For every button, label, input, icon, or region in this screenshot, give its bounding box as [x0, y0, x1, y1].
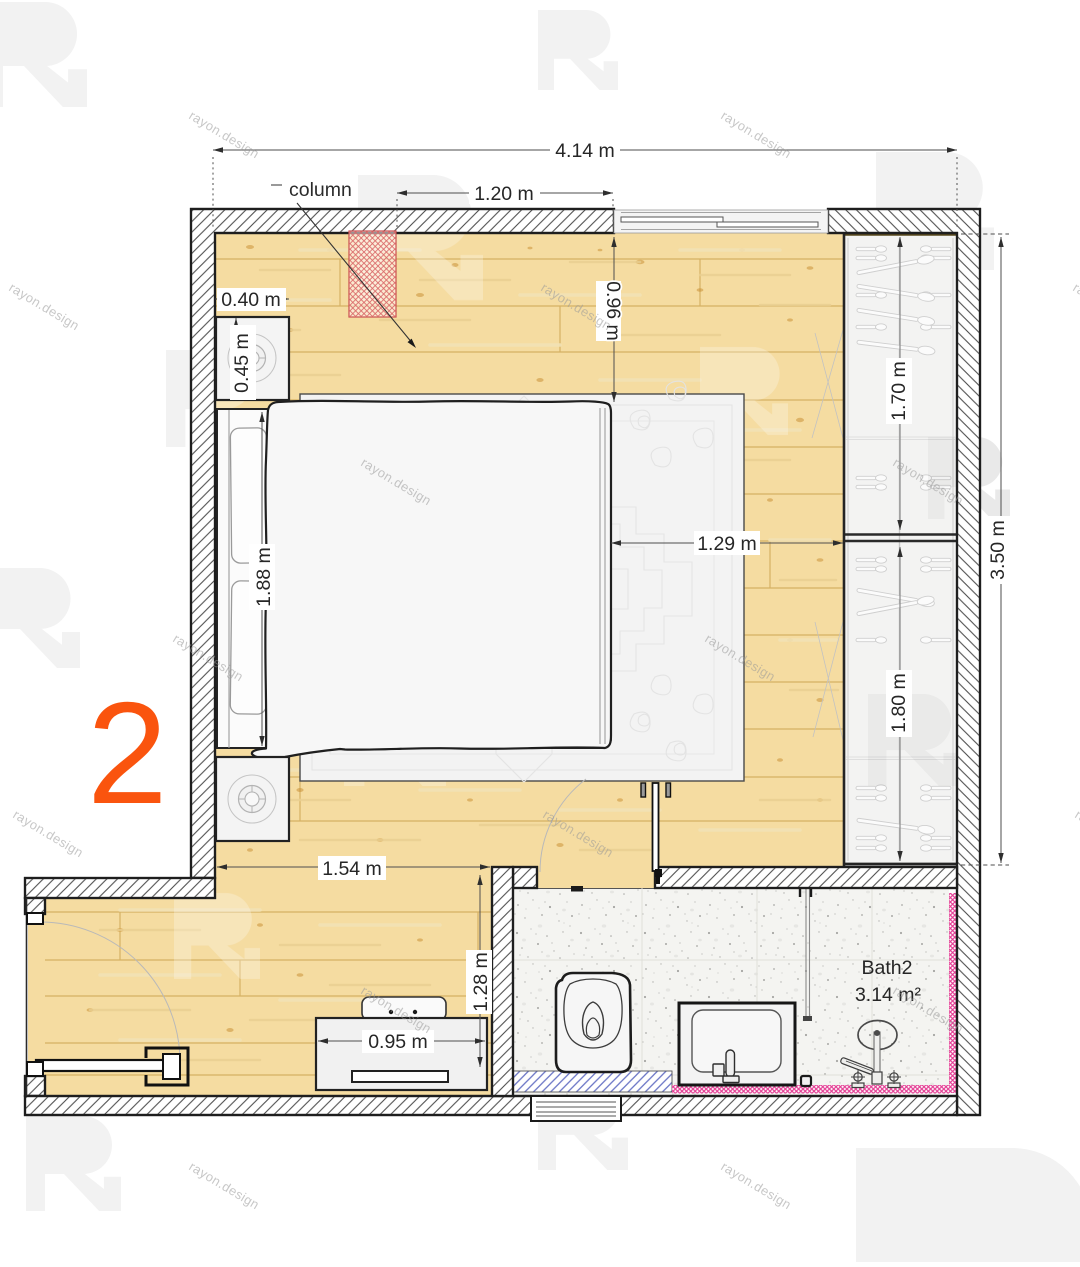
svg-text:0.40 m: 0.40 m: [221, 289, 281, 311]
svg-text:1.54 m: 1.54 m: [322, 858, 382, 880]
svg-text:1.88 m: 1.88 m: [253, 547, 275, 607]
svg-text:1.80 m: 1.80 m: [888, 673, 910, 733]
svg-text:Bath2: Bath2: [862, 957, 913, 979]
svg-text:0.95 m: 0.95 m: [368, 1031, 428, 1053]
svg-text:2: 2: [87, 672, 168, 834]
svg-text:1.70 m: 1.70 m: [888, 361, 910, 421]
svg-text:4.14 m: 4.14 m: [555, 140, 615, 162]
svg-text:column: column: [289, 179, 352, 201]
svg-text:1.20 m: 1.20 m: [474, 183, 534, 205]
svg-text:3.50 m: 3.50 m: [987, 520, 1009, 580]
svg-text:1.28 m: 1.28 m: [470, 952, 492, 1012]
svg-text:0.45 m: 0.45 m: [231, 333, 253, 393]
svg-text:1.29 m: 1.29 m: [697, 533, 757, 555]
